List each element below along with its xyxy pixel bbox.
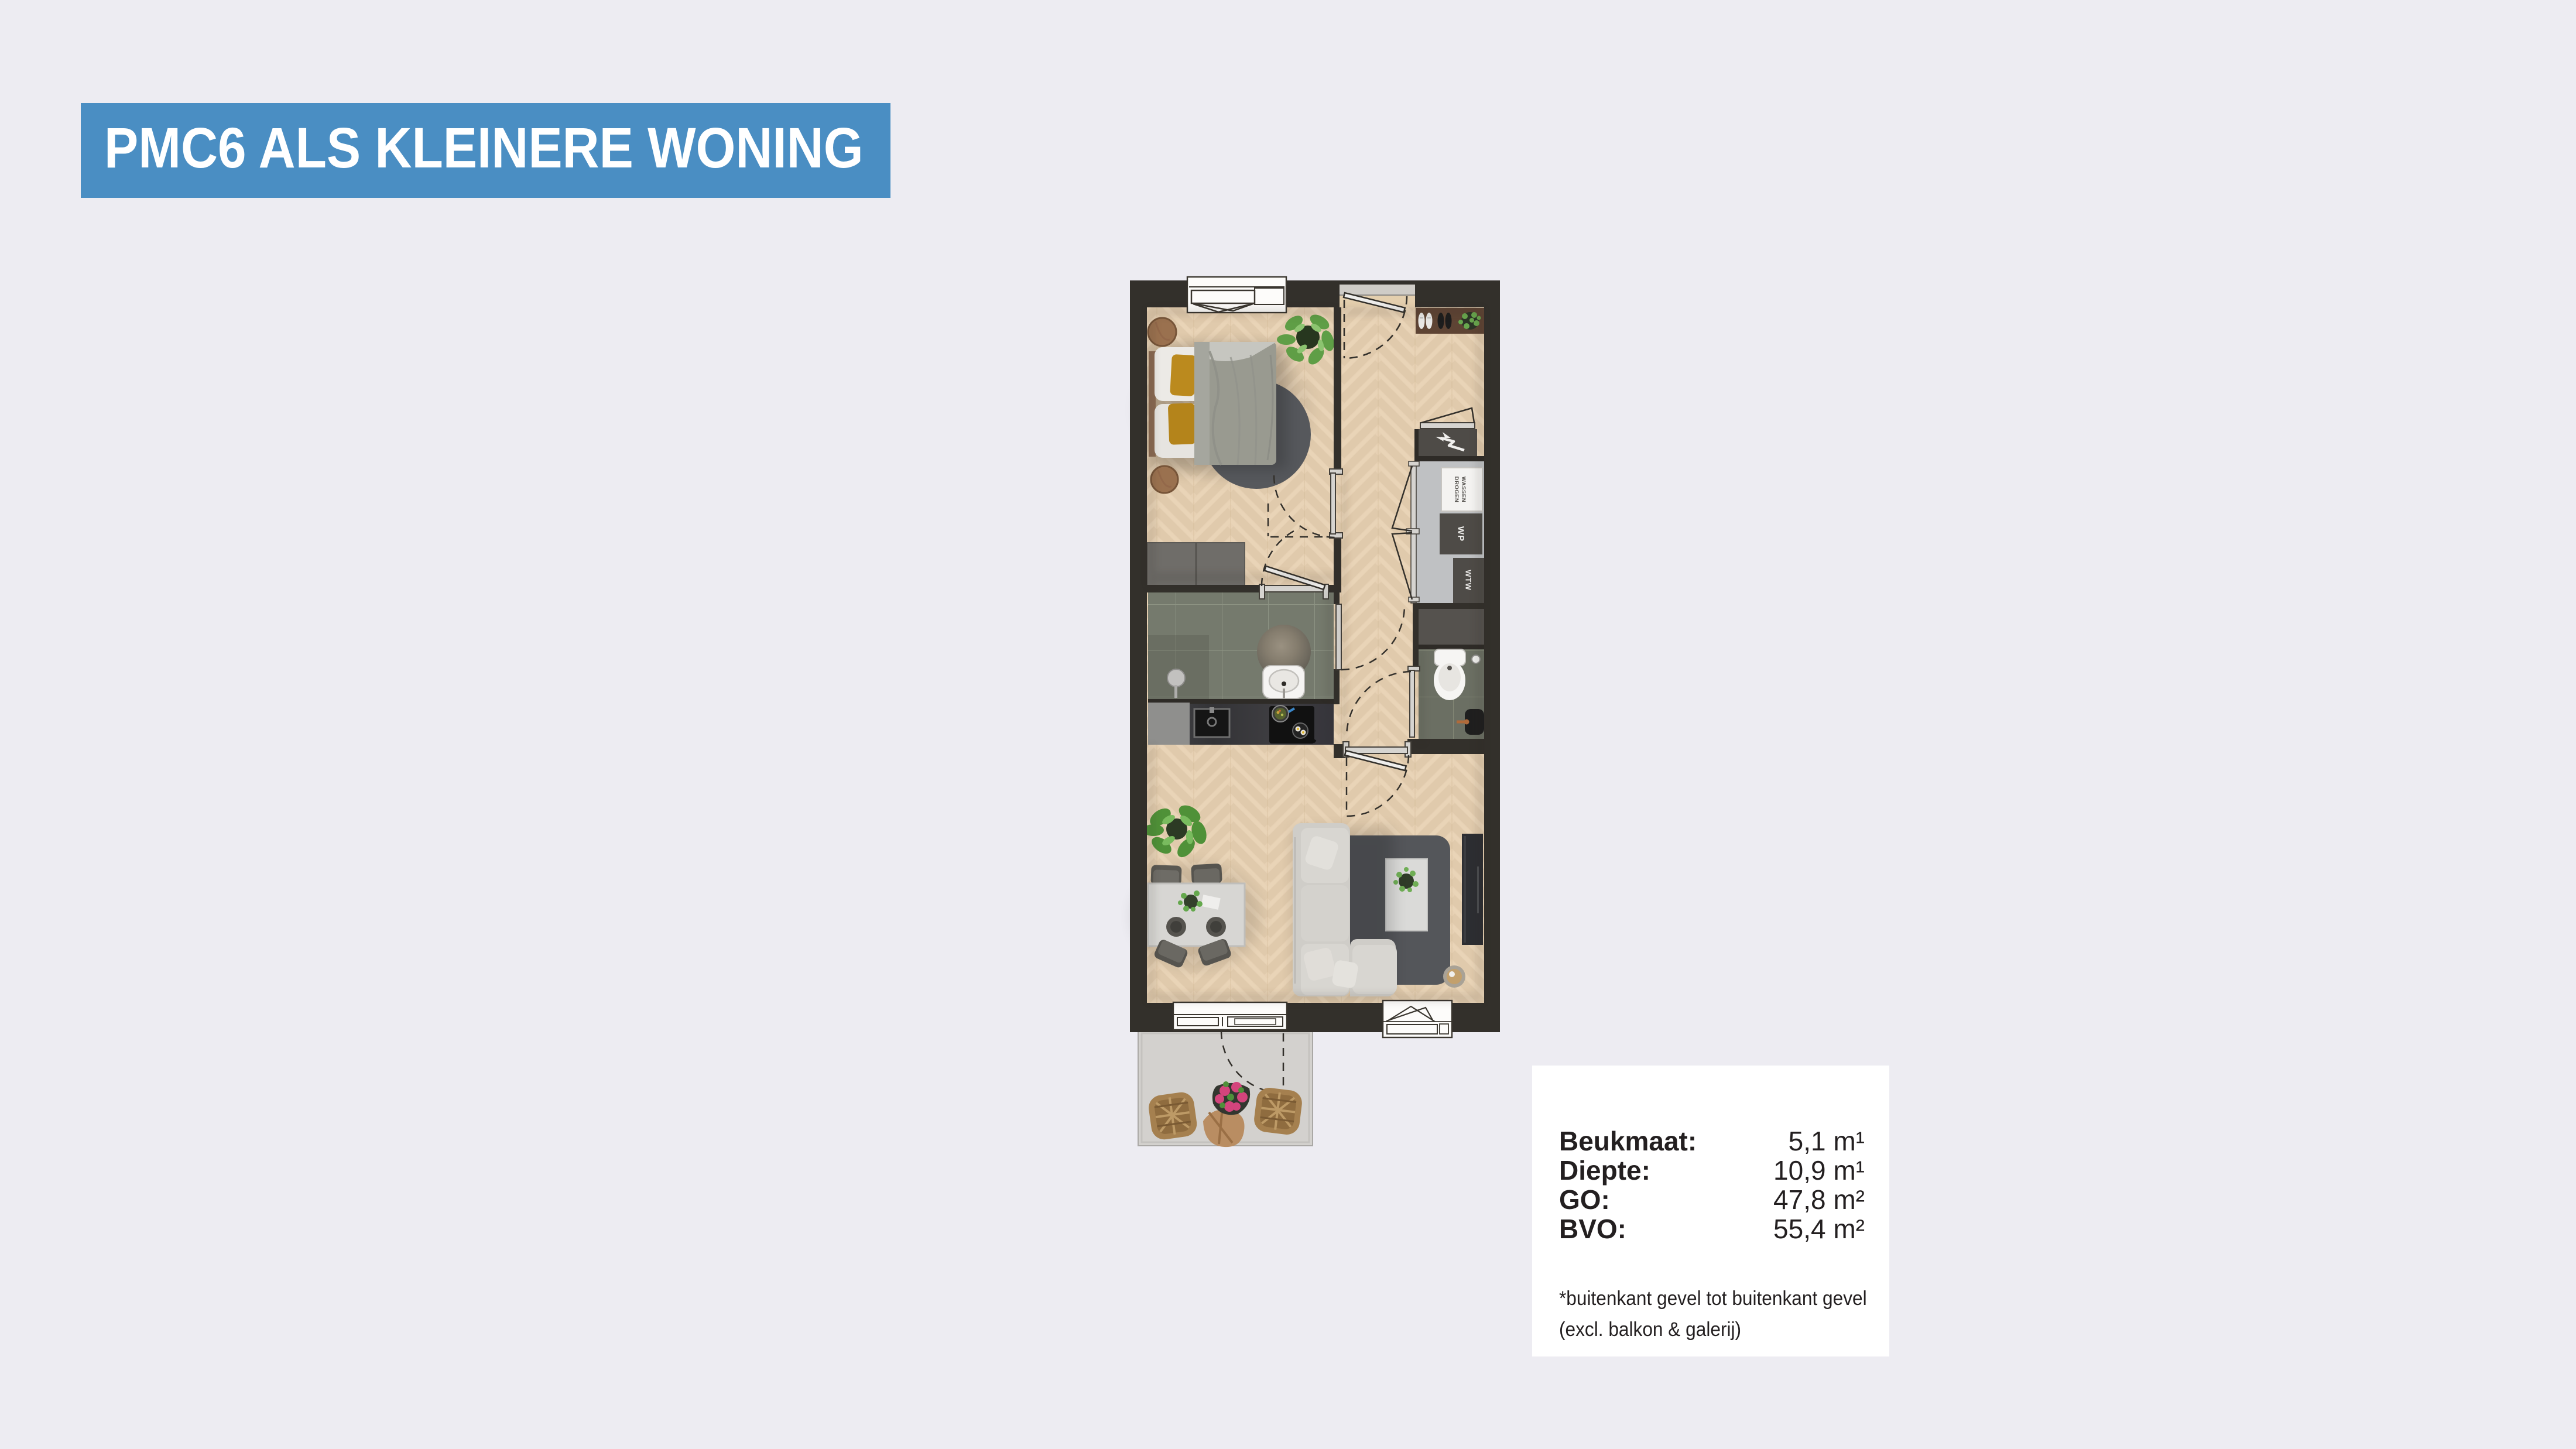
svg-text:WTW: WTW [1464, 570, 1473, 590]
svg-text:WP: WP [1456, 526, 1466, 542]
svg-text:DROGEN: DROGEN [1453, 477, 1460, 503]
svg-text:WASSEN: WASSEN [1460, 477, 1467, 502]
